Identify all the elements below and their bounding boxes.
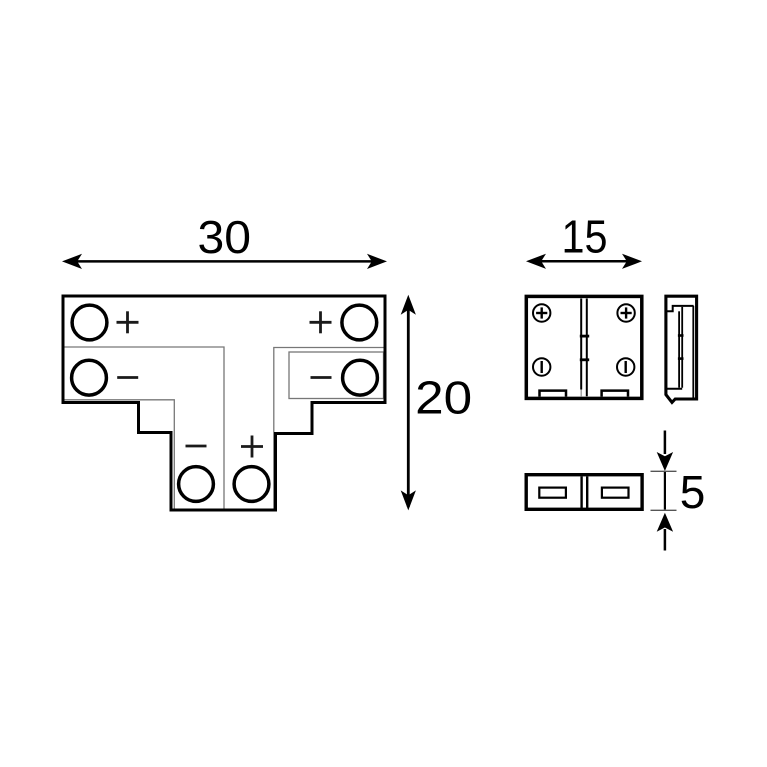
svg-text:15: 15 bbox=[562, 211, 608, 263]
svg-text:30: 30 bbox=[198, 211, 252, 263]
svg-text:5: 5 bbox=[680, 466, 706, 518]
svg-text:20: 20 bbox=[415, 372, 472, 424]
